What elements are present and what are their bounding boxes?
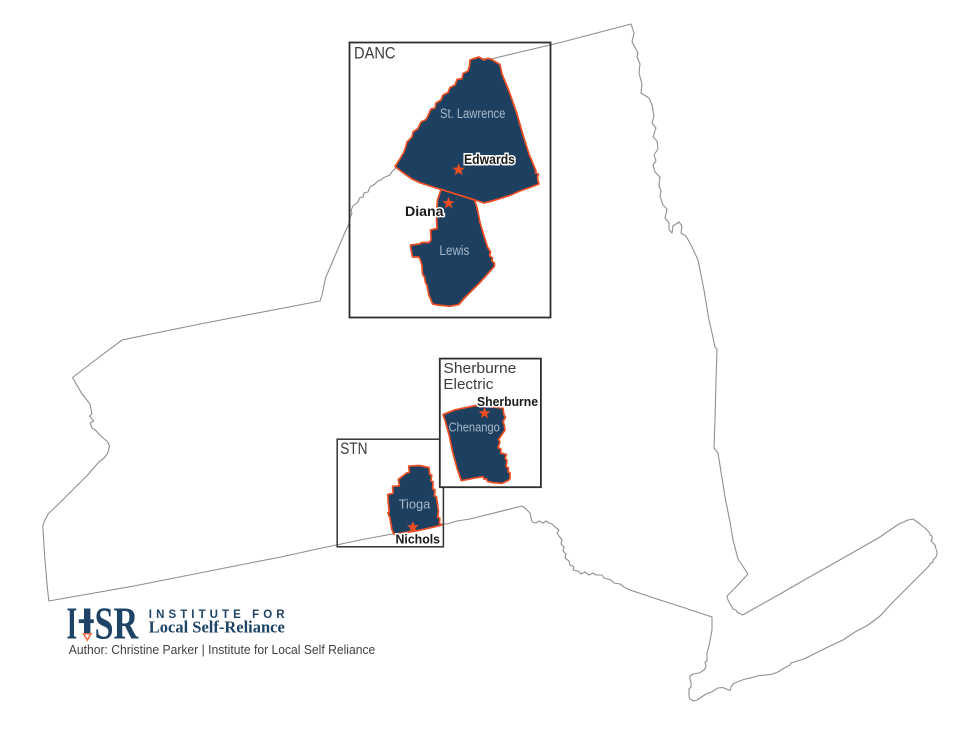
svg-text:Author: Christine Parker | Ins: Author: Christine Parker | Institute for… <box>69 642 376 657</box>
svg-text:Electric: Electric <box>443 376 493 393</box>
svg-text:Chenango: Chenango <box>449 421 500 435</box>
svg-text:Edwards: Edwards <box>464 152 515 167</box>
svg-text:Diana: Diana <box>405 204 444 219</box>
svg-text:Sherburne: Sherburne <box>477 394 538 409</box>
svg-text:Nichols: Nichols <box>396 532 441 547</box>
svg-text:Lewis: Lewis <box>439 243 469 258</box>
svg-text:Local Self-Reliance: Local Self-Reliance <box>149 617 285 636</box>
svg-text:DANC: DANC <box>354 45 396 63</box>
svg-text:STN: STN <box>340 440 367 458</box>
svg-text:Sherburne: Sherburne <box>443 360 516 377</box>
svg-text:St. Lawrence: St. Lawrence <box>440 106 505 121</box>
svg-text:Tioga: Tioga <box>399 498 431 512</box>
